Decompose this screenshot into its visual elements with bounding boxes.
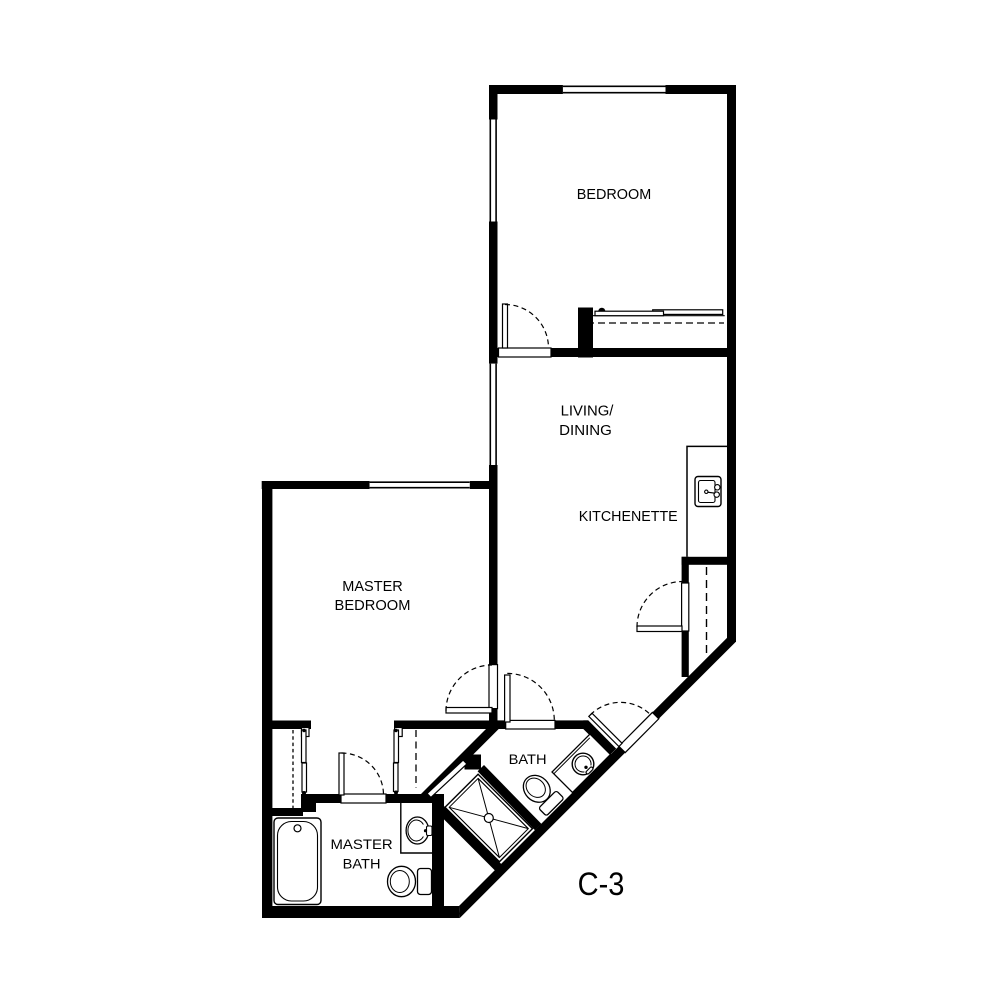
svg-text:BATH: BATH [509, 751, 547, 767]
svg-text:BEDROOM: BEDROOM [335, 597, 411, 614]
svg-text:BATH: BATH [343, 856, 381, 872]
svg-text:DINING: DINING [559, 422, 612, 439]
svg-text:LIVING/: LIVING/ [561, 403, 615, 420]
svg-text:MASTER: MASTER [342, 578, 403, 595]
svg-text:KITCHENETTE: KITCHENETTE [579, 508, 678, 525]
svg-text:BEDROOM: BEDROOM [577, 186, 651, 203]
svg-text:MASTER: MASTER [331, 836, 393, 852]
svg-text:C-3: C-3 [578, 866, 625, 902]
